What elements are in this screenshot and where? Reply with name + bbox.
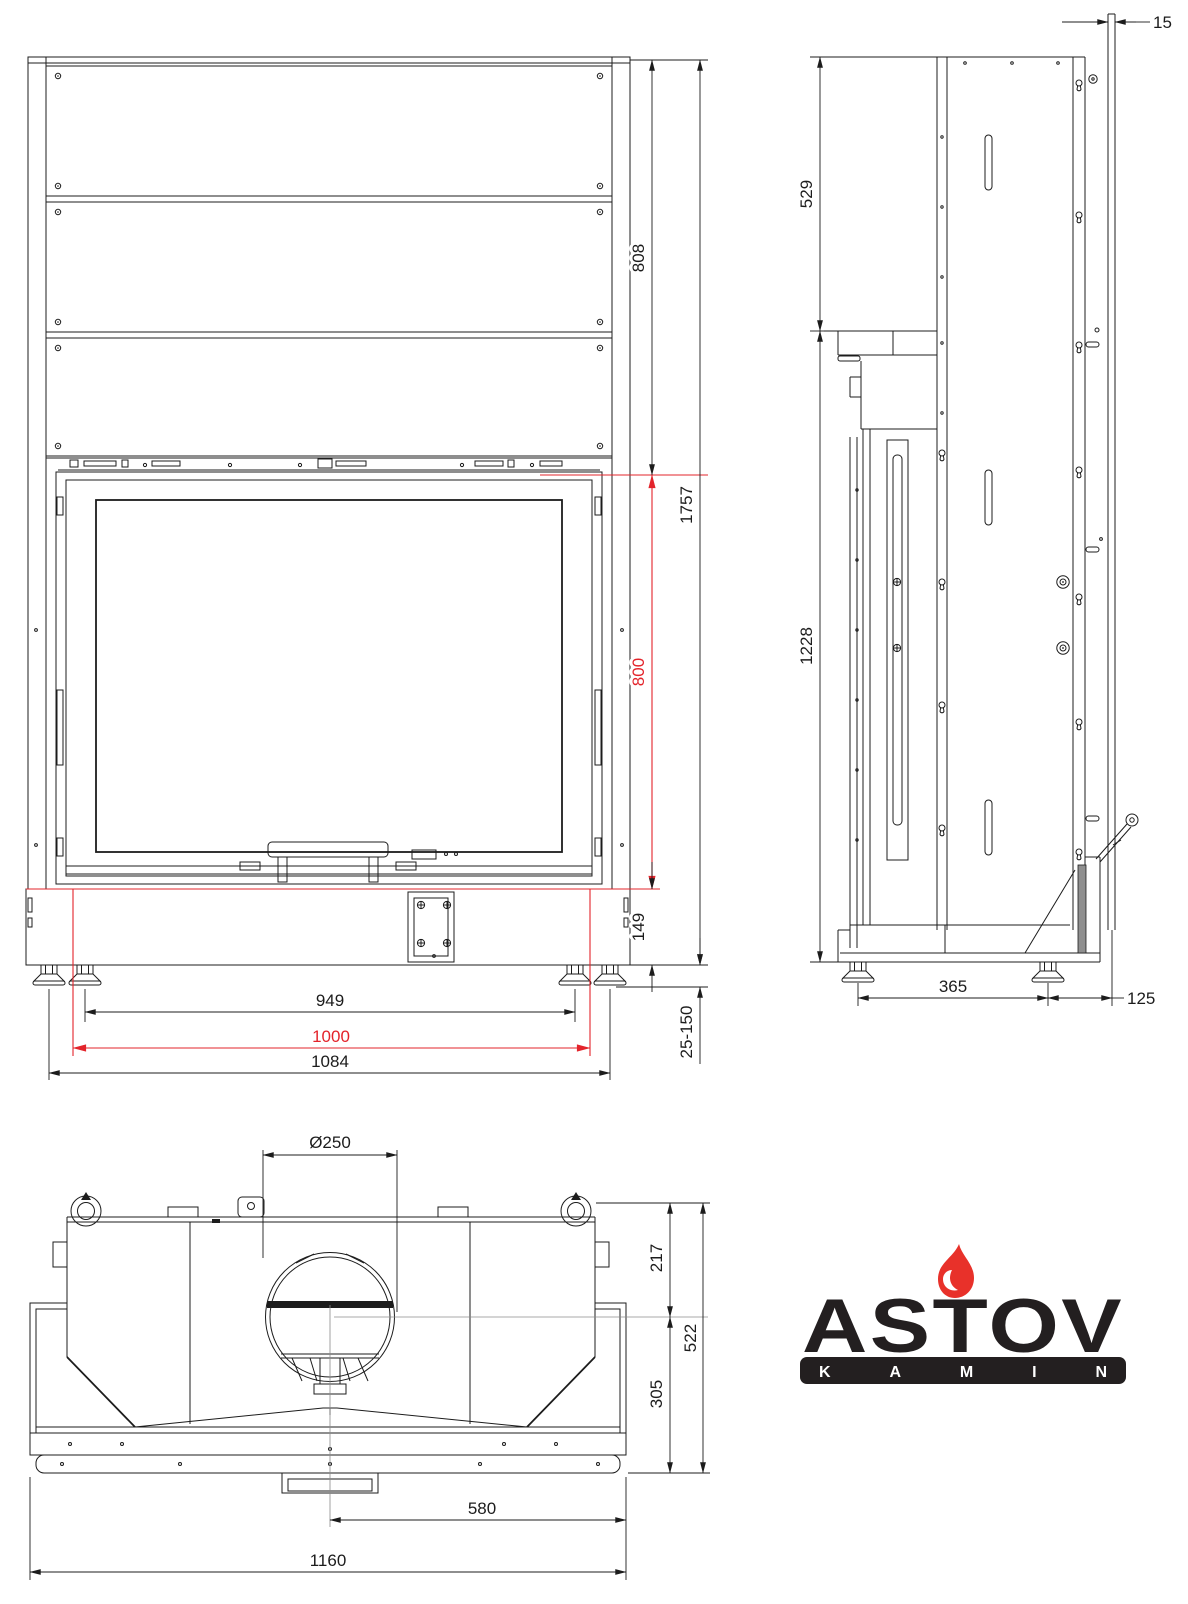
glass-door <box>35 472 624 884</box>
door-lever-handle <box>1096 814 1138 862</box>
dim-front-total-height: 1757 <box>677 486 696 524</box>
front-shelf <box>30 1427 626 1493</box>
dim-front-glass-height: 800 <box>629 658 648 686</box>
right-cap <box>561 1192 591 1226</box>
base-plinth <box>26 889 630 965</box>
dim-front-opening-width: 1000 <box>312 1027 350 1046</box>
brand-logo: ASTOV KAMIN <box>800 1244 1126 1384</box>
dim-top-flue-to-front: 305 <box>647 1380 666 1408</box>
red-reference-lines <box>26 475 708 1056</box>
dim-side-lower-height: 1228 <box>797 627 816 665</box>
drawing-sheet: 808 1757 800 149 25-150 949 1000 1084 <box>0 0 1188 1604</box>
dim-front-upper-height: 808 <box>629 244 648 272</box>
side-ledge <box>824 331 937 429</box>
convection-panels <box>46 66 612 456</box>
technical-drawing: 808 1757 800 149 25-150 949 1000 1084 <box>0 0 1188 1604</box>
dim-side-rear-offset: 125 <box>1127 989 1155 1008</box>
side-view: 15 529 1228 365 125 <box>797 13 1172 1008</box>
lift-mechanism <box>46 458 612 470</box>
side-base <box>838 857 1100 982</box>
dim-front-legs-inner: 949 <box>316 991 344 1010</box>
dim-front-legs-outer: 1084 <box>311 1052 349 1071</box>
dim-top-total-width: 1160 <box>310 1551 347 1570</box>
dim-side-legs-span: 365 <box>939 977 967 996</box>
dim-top-flue-diameter: Ø250 <box>309 1133 351 1152</box>
front-view: 808 1757 800 149 25-150 949 1000 1084 <box>26 57 708 1080</box>
dim-top-rear-to-flue: 217 <box>647 1244 666 1272</box>
dim-top-center-to-edge: 580 <box>468 1499 496 1518</box>
brand-name: ASTOV <box>802 1284 1124 1369</box>
left-cap <box>71 1192 101 1226</box>
dim-front-base-height: 149 <box>629 913 648 941</box>
dim-top-total-depth: 522 <box>681 1324 700 1352</box>
dim-side-panel-thickness: 15 <box>1153 13 1172 32</box>
top-view: Ø250 217 305 522 580 1160 <box>30 1133 710 1580</box>
dim-front-feet-range: 25-150 <box>677 1006 696 1059</box>
adjustable-feet <box>33 965 626 985</box>
side-front-section <box>850 429 908 948</box>
dim-side-upper-height: 529 <box>797 180 816 208</box>
